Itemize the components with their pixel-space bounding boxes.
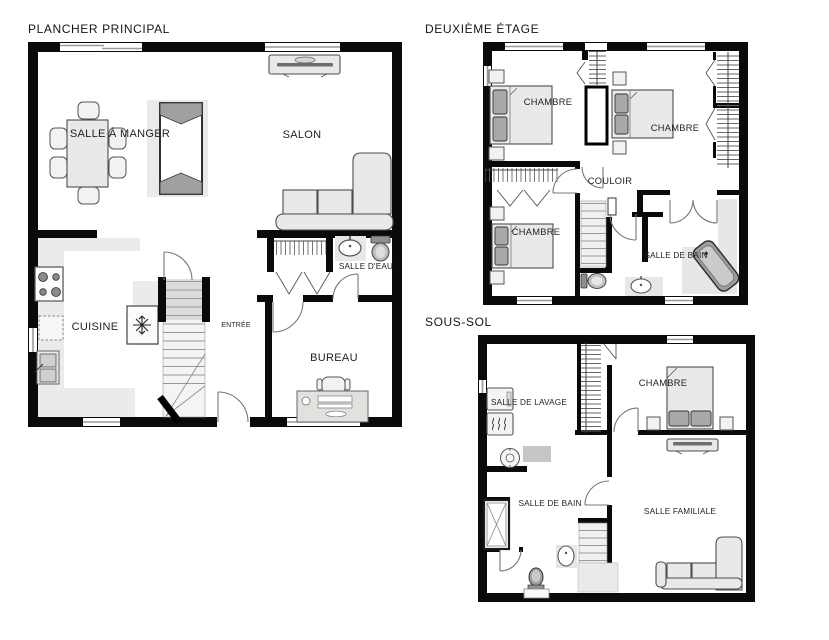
toilet-icon [524,568,549,598]
shaft-box [586,87,607,144]
bed-icon [667,367,713,429]
tv-stand-icon [667,439,718,454]
bathroom-sink-icon [556,545,577,568]
window-icon [517,297,552,304]
room-label-kitchen: CUISINE [72,321,119,333]
room-label-living: SALON [283,129,322,141]
sofa-icon [276,153,393,230]
nightstand-icon [720,417,733,430]
room-label-bedroom-top-left: CHAMBRE [524,97,573,107]
room-label-entrance: ENTRÉE [221,320,251,329]
nightstand-icon [490,207,504,220]
island-fan-icon [127,306,158,344]
water-heater-icon [501,449,520,468]
closet-hangers-icon [577,51,606,85]
dryer-icon [487,413,513,435]
stairs-landing [578,563,618,592]
bed-icon [490,86,552,144]
china-cabinet-icon [147,100,208,197]
room-label-bathroom: SALLE DE BAIN [518,499,581,508]
room-label-bedroom-top-right: CHAMBRE [651,123,700,133]
nightstand-icon [489,70,504,83]
room-label-hallway: COULOIR [588,176,632,186]
room-label-bathroom: SALLE DE BAIN [644,251,707,260]
door-arc [500,550,521,571]
kitchen-sink-icon [35,351,59,384]
window-icon [505,43,563,50]
window-icon [265,43,340,51]
sofa-sectional-icon [656,537,742,590]
floor-plan-basement: SOUS-SOL [420,312,829,640]
second-floor-title: DEUXIÈME ÉTAGE [425,21,539,36]
shower-icon [484,500,509,549]
nightstand-icon [647,417,660,430]
closet-hangers-icon [274,241,330,294]
double-door-arc [670,200,717,223]
main-floor-title: PLANCHER PRINCIPAL [28,22,170,36]
floor-plan-second-floor: DEUXIÈME ÉTAGE [420,0,829,312]
floor-plan-main-floor: PLANCHER PRINCIPAL [0,0,420,440]
window-icon [29,328,37,352]
room-label-family-room: SALLE FAMILIALE [644,507,717,516]
nightstand-icon [613,72,626,85]
tv-console-icon [269,55,340,77]
front-door-opening [217,417,250,427]
window-icon [665,297,693,304]
stairs-icon [158,277,210,422]
door-arc [164,252,192,280]
closet-hangers-icon [485,168,558,206]
closet-opening [585,43,607,50]
basement-title: SOUS-SOL [425,315,492,329]
window-icon [667,336,693,343]
room-label-office: BUREAU [310,352,358,364]
dishwasher-icon [39,316,63,340]
nightstand-icon [489,147,504,160]
room-label-dining: SALLE À MANGER [70,127,170,140]
toilet-icon [371,236,390,261]
window-icon [647,43,705,50]
door-arc [273,302,303,332]
room-label-powder-room: SALLE D'EAU [339,262,393,271]
nightstand-icon [613,141,626,154]
stove-icon [35,267,63,301]
floor-mat [523,446,551,462]
room-label-laundry: SALLE DE LAVAGE [491,398,567,407]
floor-plan-page: PLANCHER PRINCIPAL [0,0,829,640]
closet-hangers-icon [706,52,739,168]
room-label-bedroom-bottom: CHAMBRE [512,227,561,237]
window-icon [60,43,142,51]
door-arc [614,408,638,432]
bathroom-sink-icon [335,236,366,261]
room-label-bedroom: CHAMBRE [639,378,688,388]
nightstand-icon [490,271,504,284]
door-arc [585,481,609,505]
window-icon [479,380,486,393]
door-arc [610,214,636,240]
desk-icon [297,391,368,422]
toilet-icon [581,274,606,289]
door-arc [333,274,358,299]
window-icon [83,418,120,426]
dining-table-icon [50,102,126,204]
